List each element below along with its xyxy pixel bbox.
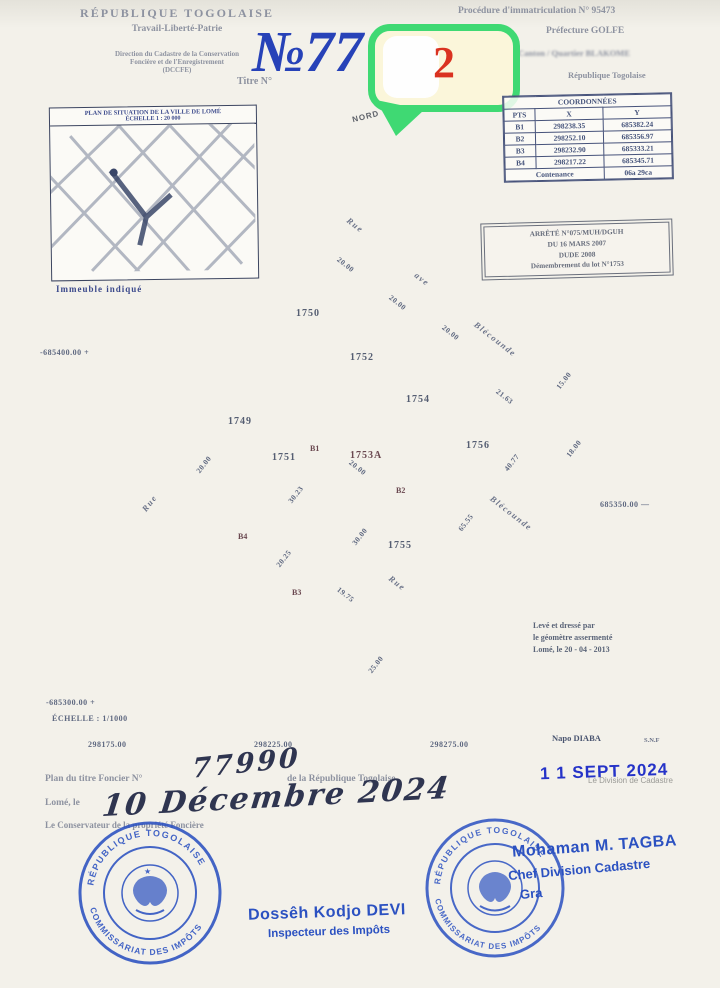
plan-scale-label: ÉCHELLE : 1/1000 (52, 714, 128, 723)
annotation-number: 2 (375, 37, 513, 88)
round-stamp-left: RÉPUBLIQUE TOGOLAISE COMMISSARIAT DES IM… (58, 808, 308, 988)
stamp-fragment: Gra (519, 885, 543, 902)
parcel-label: 1752 (350, 352, 374, 363)
corner-point: B3 (292, 588, 301, 597)
map-caption: Immeuble indiqué (56, 284, 142, 294)
title-number: №77 (252, 18, 363, 85)
contenance-row: Contenance 06a 29ca (505, 166, 672, 181)
contenance-label: Contenance (505, 167, 604, 181)
surveyor-block: Levé et dressé par le géomètre asserment… (533, 620, 683, 656)
surveyor-name: Napo DIABA (552, 733, 601, 743)
axis-label-x: 298275.00 (430, 740, 469, 749)
scan-mark (57, 0, 60, 9)
situation-map: PLAN DE SITUATION DE LA VILLE DE LOMÉ ÉC… (49, 105, 259, 282)
corner-point: B2 (396, 486, 405, 495)
contenance-value: 06a 29ca (604, 166, 672, 179)
stamp-emblem (133, 876, 167, 906)
parcel-label: 1751 (272, 452, 296, 463)
parcel-label: 1756 (466, 440, 490, 451)
map-streets (50, 124, 256, 273)
footer-line2-prefix: Lomé, le (45, 798, 80, 808)
prefecture-line: Préfecture GOLFE (546, 26, 708, 36)
parcel-label: 1750 (296, 308, 320, 319)
axis-label-y: -685400.00 + (40, 348, 89, 357)
parcel-label: 1755 (388, 540, 412, 551)
svg-text:COMMISSARIAT DES IMPÔTS: COMMISSARIAT DES IMPÔTS (433, 898, 543, 951)
arrete-box: ARRÊTÉ N°075/MUH/DGUH DU 16 MARS 2007 DU… (483, 222, 670, 278)
highlighted-route (111, 170, 172, 246)
coordinates-table: COORDONNÉES PTS X Y B1298238.35685382.24… (502, 92, 674, 183)
parcel-label: 1749 (228, 416, 252, 427)
axis-label-y: 685350.00 — (600, 500, 650, 509)
procedure-line: Procédure d'immatriculation N° 95473 (458, 6, 708, 16)
parcel-label: 1754 (406, 394, 430, 405)
axis-label-x: 298175.00 (88, 740, 127, 749)
corner-point: B1 (310, 444, 319, 453)
surveyor-ref: S.N.F (644, 737, 660, 744)
surveyor-line3: Lomé, le 20 - 04 - 2013 (533, 644, 683, 656)
republic-fragment: République Togolaise (568, 70, 708, 80)
footer-line1-prefix: Plan du titre Foncier N° (45, 774, 142, 784)
axis-label-y: -685300.00 + (46, 698, 95, 707)
svg-text:★: ★ (144, 867, 151, 876)
surveyor-line2: le géomètre assermenté (533, 632, 683, 644)
stamp-emblem (479, 872, 511, 902)
col-pts: PTS (504, 109, 535, 122)
quartier-line: Canton / Quartier BLAKOME (518, 48, 708, 58)
annotation-bubble: 2 (368, 24, 520, 112)
corner-point: B4 (238, 532, 247, 541)
surveyor-line1: Levé et dressé par (533, 620, 683, 632)
bubble-tail (362, 100, 432, 140)
